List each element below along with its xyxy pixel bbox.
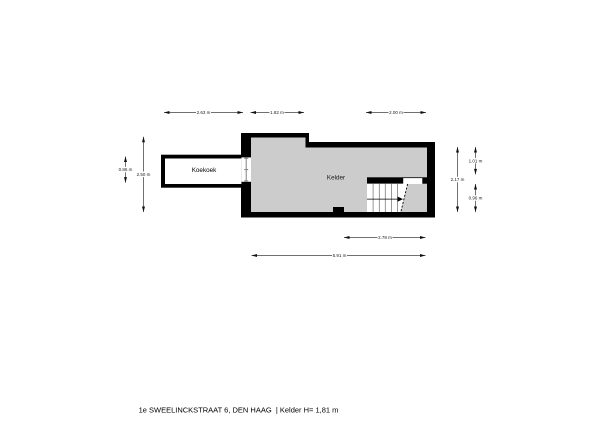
svg-text:Kelder: Kelder [327, 175, 345, 182]
svg-text:0.96 m: 0.96 m [469, 196, 483, 201]
svg-text:5.91 m: 5.91 m [333, 253, 347, 258]
svg-text:1e SWEELINCKSTRAAT 6, DEN HAAG: 1e SWEELINCKSTRAAT 6, DEN HAAG | Kelder … [139, 405, 339, 414]
svg-text:2.63 m: 2.63 m [197, 110, 211, 115]
svg-text:1.82 m: 1.82 m [270, 110, 284, 115]
svg-text:2.78 m: 2.78 m [378, 235, 392, 240]
svg-text:2.50 m: 2.50 m [137, 172, 151, 177]
svg-text:2.17 m: 2.17 m [451, 177, 465, 182]
svg-text:Koekoek: Koekoek [192, 167, 217, 174]
svg-text:1.01 m: 1.01 m [469, 158, 483, 163]
svg-text:2.00 m: 2.00 m [389, 110, 403, 115]
svg-text:0.86 m: 0.86 m [119, 167, 133, 172]
